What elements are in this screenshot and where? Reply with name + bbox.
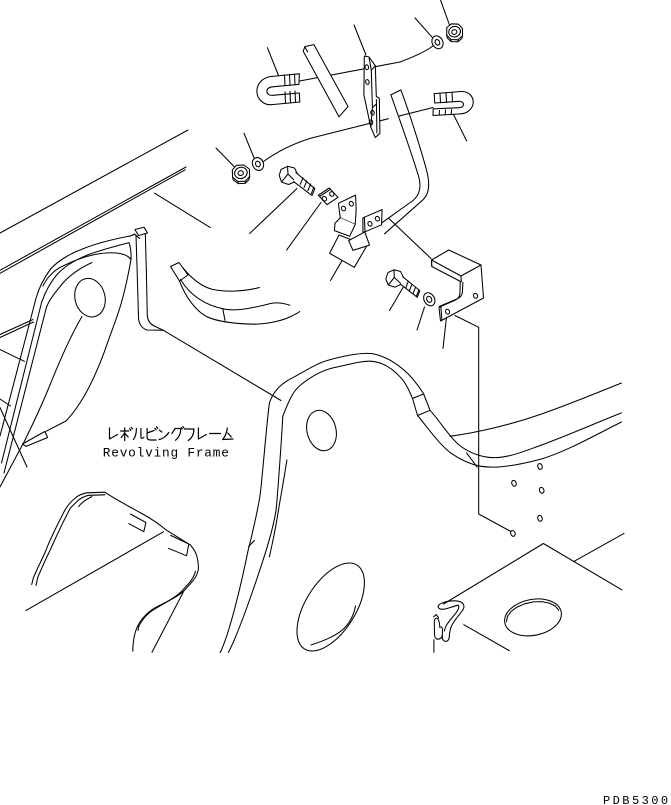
svg-text:Revolving Frame: Revolving Frame: [103, 446, 230, 461]
svg-text:PDB5300: PDB5300: [603, 794, 671, 805]
